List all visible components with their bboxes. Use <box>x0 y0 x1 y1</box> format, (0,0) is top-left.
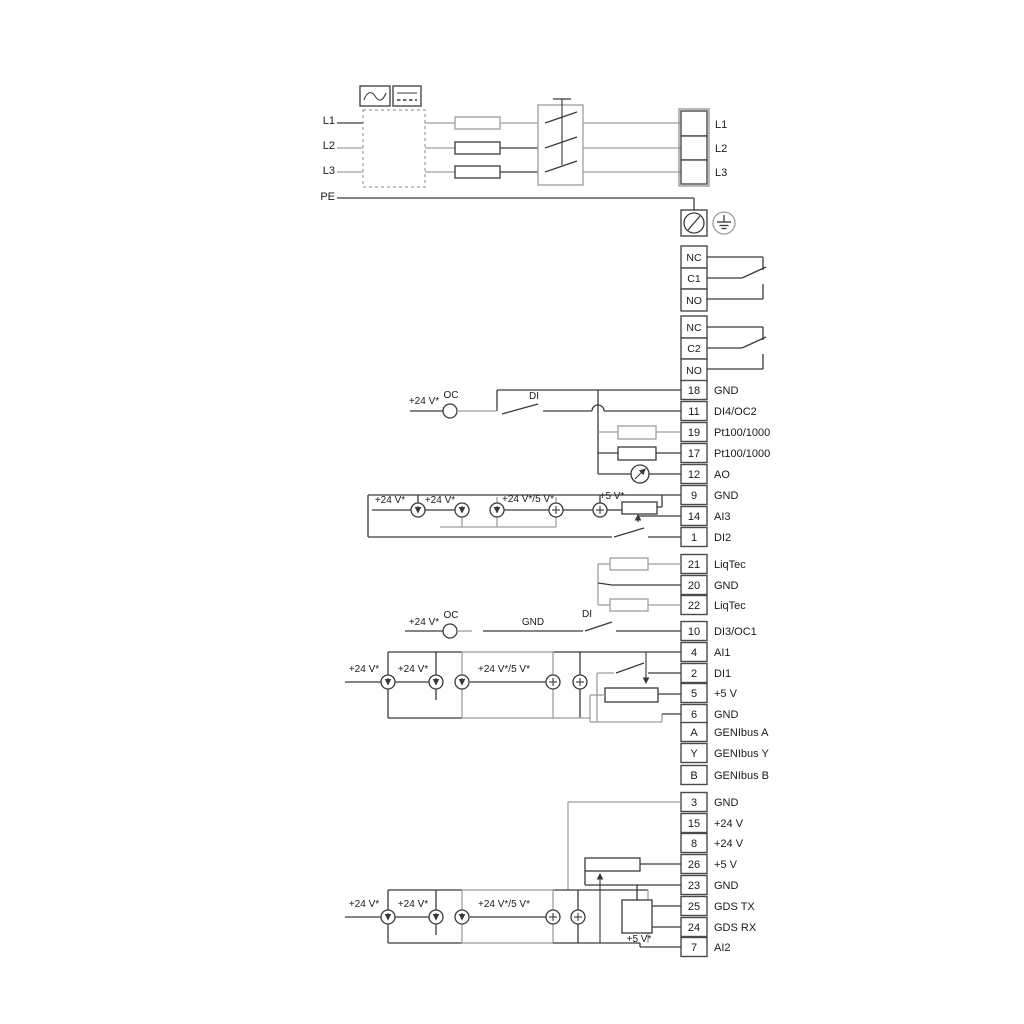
terminal-a: A <box>690 727 698 739</box>
open-collector-source-icon <box>443 404 457 418</box>
input-label-l3: L3 <box>323 165 335 177</box>
oc-label: OC <box>444 610 459 621</box>
terminal-24-label: GDS RX <box>714 922 757 934</box>
terminal-4: 4 <box>691 647 697 659</box>
plus24-label: +24 V* <box>409 617 439 628</box>
plus24-label: +24 V* <box>375 495 405 506</box>
terminal-17-label: Pt100/1000 <box>714 448 770 460</box>
terminal-11-label: DI4/OC2 <box>714 406 757 418</box>
di-label: DI <box>582 609 592 620</box>
terminal-12-label: AO <box>714 469 730 481</box>
terminal-15-label: +24 V <box>714 818 744 830</box>
terminal-22: 22 <box>688 600 700 612</box>
terminal-10: 10 <box>688 626 700 638</box>
terminal-14: 14 <box>688 511 700 523</box>
terminal-4-label: AI1 <box>714 647 731 659</box>
terminal-18-label: GND <box>714 385 739 397</box>
terminal-label-l2: L2 <box>715 143 727 155</box>
plus24-label: +24 V* <box>349 664 379 675</box>
terminal-b-label: GENIbus B <box>714 770 769 782</box>
terminal-26-label: +5 V <box>714 859 738 871</box>
relay1-no: NO <box>686 295 702 307</box>
ai3-sensor-wiring: +24 V* +24 V* +24 V*/5 V* +5 V* <box>368 491 681 537</box>
relay2-no: NO <box>686 365 702 377</box>
oc-label: OC <box>444 390 459 401</box>
terminal-21-label: LiqTec <box>714 559 746 571</box>
terminal-8-label: +24 V <box>714 838 744 850</box>
potentiometer <box>585 858 640 871</box>
terminal-5: 5 <box>691 688 697 700</box>
fuse-l1 <box>455 117 500 129</box>
plus24-label: +24 V* <box>349 899 379 910</box>
terminal-2: 2 <box>691 668 697 680</box>
fuse-l2 <box>455 142 500 154</box>
terminal-group-f: 3 15 8 26 23 25 24 7 GND +24 V +24 V +5 … <box>681 793 757 957</box>
drive-input-dashed-box <box>363 110 425 187</box>
wiring-diagram: L1 L2 L3 PE <box>0 0 1024 1024</box>
pt100-sensor-2 <box>618 447 656 460</box>
power-section: L1 L2 L3 PE <box>320 86 735 236</box>
terminal-21: 21 <box>688 559 700 571</box>
terminal-22-label: LiqTec <box>714 600 746 612</box>
terminal-6-label: GND <box>714 709 739 721</box>
liqtec-sensor-2 <box>610 599 648 611</box>
terminal-label-l3: L3 <box>715 167 727 179</box>
terminal-25: 25 <box>688 901 700 913</box>
terminal-6: 6 <box>691 709 697 721</box>
terminal-19-label: Pt100/1000 <box>714 427 770 439</box>
potentiometer <box>605 688 658 702</box>
liqtec-wiring <box>598 558 681 611</box>
terminal-group-b: 21 20 22 LiqTec GND LiqTec <box>598 555 746 615</box>
relay2-contact <box>742 337 766 348</box>
pe-earth-section <box>337 198 735 236</box>
terminal-8: 8 <box>691 838 697 850</box>
plus5-label: +5 V* <box>627 934 652 945</box>
di-label: DI <box>529 391 539 402</box>
fuse-l3 <box>455 166 500 178</box>
terminal-9: 9 <box>691 490 697 502</box>
terminal-5-label: +5 V <box>714 688 738 700</box>
relay2-section: NC C2 NO <box>681 316 766 381</box>
ac-symbol-box <box>360 86 390 106</box>
di3-wiring: +24 V* OC GND DI <box>405 609 681 638</box>
relay2-nc: NC <box>686 322 702 334</box>
terminal-y: Y <box>690 748 698 760</box>
relay2-c2: C2 <box>687 343 701 355</box>
di2-switch <box>614 528 644 537</box>
ai2-sensor-wiring: +24 V* +24 V* +24 V*/5 V* +5 V* <box>345 802 681 947</box>
terminal-15: 15 <box>688 818 700 830</box>
relay1-c1: C1 <box>687 273 701 285</box>
power-terminal-block: L1 L2 L3 <box>679 109 727 186</box>
plus24or5-label: +24 V*/5 V* <box>478 664 530 675</box>
terminal-group-d: 4 2 5 6 AI1 DI1 +5 V GND <box>681 643 739 724</box>
relay1-section: NC C1 NO <box>681 246 766 311</box>
pt100-sensor-1 <box>618 426 656 439</box>
open-collector-source-icon <box>443 624 457 638</box>
terminal-y-label: GENIbus Y <box>714 748 769 760</box>
terminal-group-e: A Y B GENIbus A GENIbus Y GENIbus B <box>681 723 769 785</box>
terminal-b: B <box>690 770 697 782</box>
plus24or5-label: +24 V*/5 V* <box>502 494 554 505</box>
terminal-a-label: GENIbus A <box>714 727 769 739</box>
terminal-20-label: GND <box>714 580 739 592</box>
terminal-7: 7 <box>691 942 697 954</box>
input-label-l1: L1 <box>323 115 335 127</box>
plus5-label: +5 V* <box>600 491 625 502</box>
gnd-label: GND <box>522 617 544 628</box>
liqtec-sensor-1 <box>610 558 648 570</box>
terminal-26: 26 <box>688 859 700 871</box>
terminal-label-l1: L1 <box>715 119 727 131</box>
plus24or5-label: +24 V*/5 V* <box>478 899 530 910</box>
potentiometer <box>622 502 657 514</box>
terminal-10-label: DI3/OC1 <box>714 626 757 638</box>
terminal-17: 17 <box>688 448 700 460</box>
input-label-l2: L2 <box>323 140 335 152</box>
terminal-23-label: GND <box>714 880 739 892</box>
terminal-1-label: DI2 <box>714 532 731 544</box>
plus24-label: +24 V* <box>398 664 428 675</box>
terminal-12: 12 <box>688 469 700 481</box>
di1-switch <box>616 663 644 673</box>
terminal-11: 11 <box>688 406 699 418</box>
mains-switch <box>538 99 583 185</box>
wiring-diagram-page: L1 L2 L3 PE <box>0 0 1024 1024</box>
terminal-24: 24 <box>688 922 700 934</box>
terminal-9-label: GND <box>714 490 739 502</box>
terminal-23: 23 <box>688 880 700 892</box>
terminal-2-label: DI1 <box>714 668 731 680</box>
terminal-3-label: GND <box>714 797 739 809</box>
earth-ground-icon <box>713 212 735 234</box>
terminal-1: 1 <box>691 532 697 544</box>
di3-switch <box>585 622 612 631</box>
plus24-label: +24 V* <box>425 495 455 506</box>
terminal-group-a: 18 11 19 17 12 9 14 1 GND DI4/OC2 Pt100/… <box>681 381 770 547</box>
gds-sensor-box <box>622 900 652 933</box>
terminal-7-label: AI2 <box>714 942 731 954</box>
terminal-3: 3 <box>691 797 697 809</box>
dc-symbol-box <box>393 86 421 106</box>
terminal-25-label: GDS TX <box>714 901 755 913</box>
ai1-sensor-wiring: +24 V* +24 V* +24 V*/5 V* <box>345 652 681 722</box>
relay1-nc: NC <box>686 252 702 264</box>
plus24-label: +24 V* <box>409 396 439 407</box>
plus24-label: +24 V* <box>398 899 428 910</box>
relay1-contact <box>742 267 766 278</box>
di4-switch <box>502 404 538 414</box>
terminal-14-label: AI3 <box>714 511 731 523</box>
terminal-18: 18 <box>688 385 700 397</box>
input-label-pe: PE <box>320 191 335 203</box>
terminal-20: 20 <box>688 580 700 592</box>
pt100-ao-wiring <box>598 426 681 483</box>
terminal-19: 19 <box>688 427 700 439</box>
